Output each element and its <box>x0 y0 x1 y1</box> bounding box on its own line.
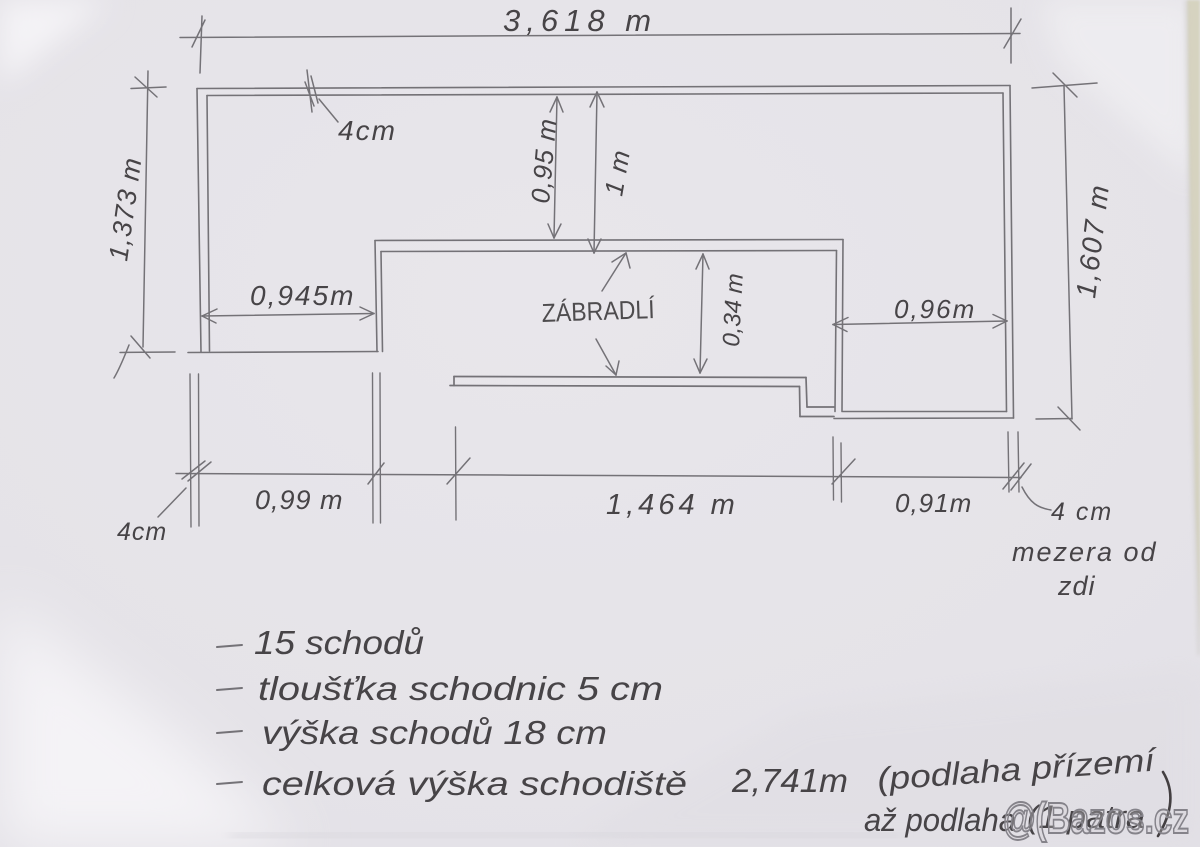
svg-text:celková výška schodiště: celková výška schodiště <box>262 765 687 802</box>
svg-text:až podlaha: až podlaha <box>864 802 1016 838</box>
svg-text:3,618 m: 3,618 m <box>503 3 657 38</box>
svg-text:15 schodů: 15 schodů <box>254 624 424 661</box>
svg-text:tloušťka schodnic 5 cm: tloušťka schodnic 5 cm <box>258 670 663 707</box>
svg-text:zdi: zdi <box>1057 571 1096 601</box>
svg-text:0,96m: 0,96m <box>894 294 976 324</box>
svg-text:0,91m: 0,91m <box>895 488 972 518</box>
svg-text:4cm: 4cm <box>117 518 167 546</box>
svg-text:ZÁBRADLÍ: ZÁBRADLÍ <box>541 294 656 328</box>
svg-text:výška schodů 18 cm: výška schodů 18 cm <box>262 714 607 751</box>
svg-text:4cm: 4cm <box>338 115 397 146</box>
svg-text:@(Bazos.cz: @(Bazos.cz <box>1003 794 1189 843</box>
svg-text:0,99 m: 0,99 m <box>255 485 344 515</box>
svg-text:2,741m: 2,741m <box>731 762 848 799</box>
svg-text:0,945m: 0,945m <box>250 280 355 311</box>
svg-text:4 cm: 4 cm <box>1051 498 1113 526</box>
svg-text:0,34 m: 0,34 m <box>718 273 749 348</box>
svg-text:1,464 m: 1,464 m <box>606 489 739 521</box>
svg-text:mezera od: mezera od <box>1012 537 1158 567</box>
